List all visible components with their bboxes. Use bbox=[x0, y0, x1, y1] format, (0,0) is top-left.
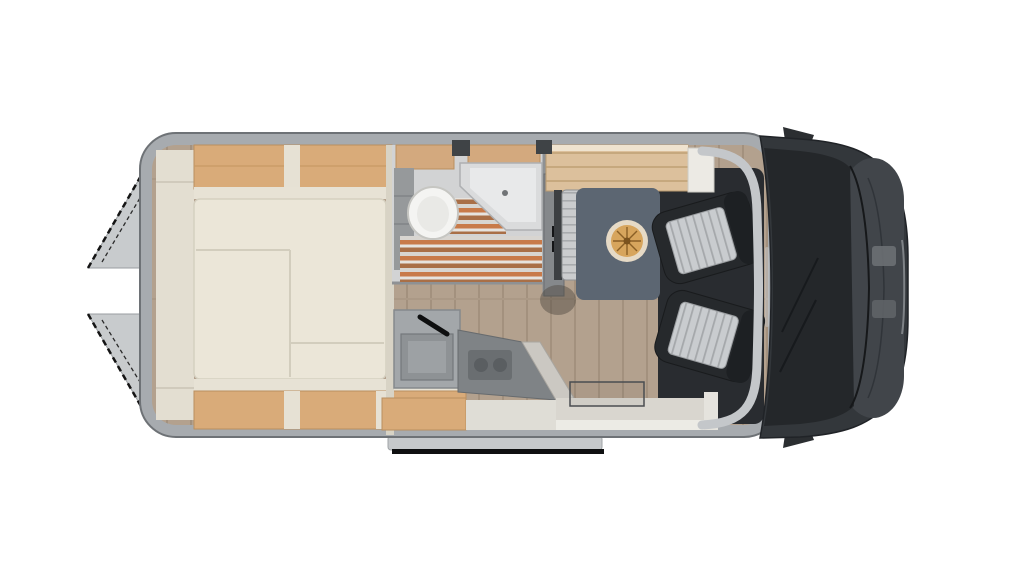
windshield-marking bbox=[765, 247, 769, 327]
entry-step bbox=[388, 436, 604, 454]
kitchen-base-cabinet bbox=[382, 398, 466, 430]
step-tread bbox=[388, 436, 602, 450]
cabinet-ledge bbox=[194, 187, 392, 199]
sideboard bbox=[536, 140, 714, 192]
dining-table bbox=[606, 220, 648, 262]
step-edge bbox=[392, 449, 604, 454]
floorplan-image bbox=[0, 0, 1024, 575]
cabinet-divider bbox=[284, 145, 300, 189]
shelf-top bbox=[156, 150, 194, 420]
grille-detail bbox=[872, 300, 896, 318]
sink-bowl bbox=[408, 341, 446, 373]
windshield bbox=[764, 148, 854, 426]
rear-shelf bbox=[156, 150, 194, 420]
double-bed bbox=[194, 199, 386, 379]
bathroom bbox=[392, 140, 544, 296]
cabinet-divider bbox=[284, 391, 300, 429]
sideboard-edge bbox=[546, 145, 688, 151]
bathroom-overhead-cabinet bbox=[396, 145, 454, 169]
kitchen-ledge bbox=[466, 400, 558, 430]
overhead-cabinets-rear bbox=[194, 145, 392, 199]
floorplan-canvas bbox=[0, 0, 1024, 575]
vehicle-front bbox=[760, 136, 908, 438]
burner bbox=[474, 358, 488, 372]
bench-frame bbox=[554, 190, 562, 280]
toilet-seat bbox=[417, 196, 449, 232]
roof-vent bbox=[452, 140, 470, 156]
bathroom-overhead-cabinet bbox=[468, 145, 540, 165]
burner bbox=[493, 358, 507, 372]
grille-detail bbox=[872, 246, 896, 266]
drain bbox=[502, 190, 508, 196]
table-center bbox=[624, 238, 631, 245]
shower-grate bbox=[400, 236, 542, 282]
floor-shadow bbox=[540, 285, 576, 315]
entry-sill bbox=[556, 420, 714, 430]
entry-mat bbox=[570, 382, 644, 406]
vent-small bbox=[536, 140, 552, 154]
sideboard-top bbox=[546, 145, 688, 191]
